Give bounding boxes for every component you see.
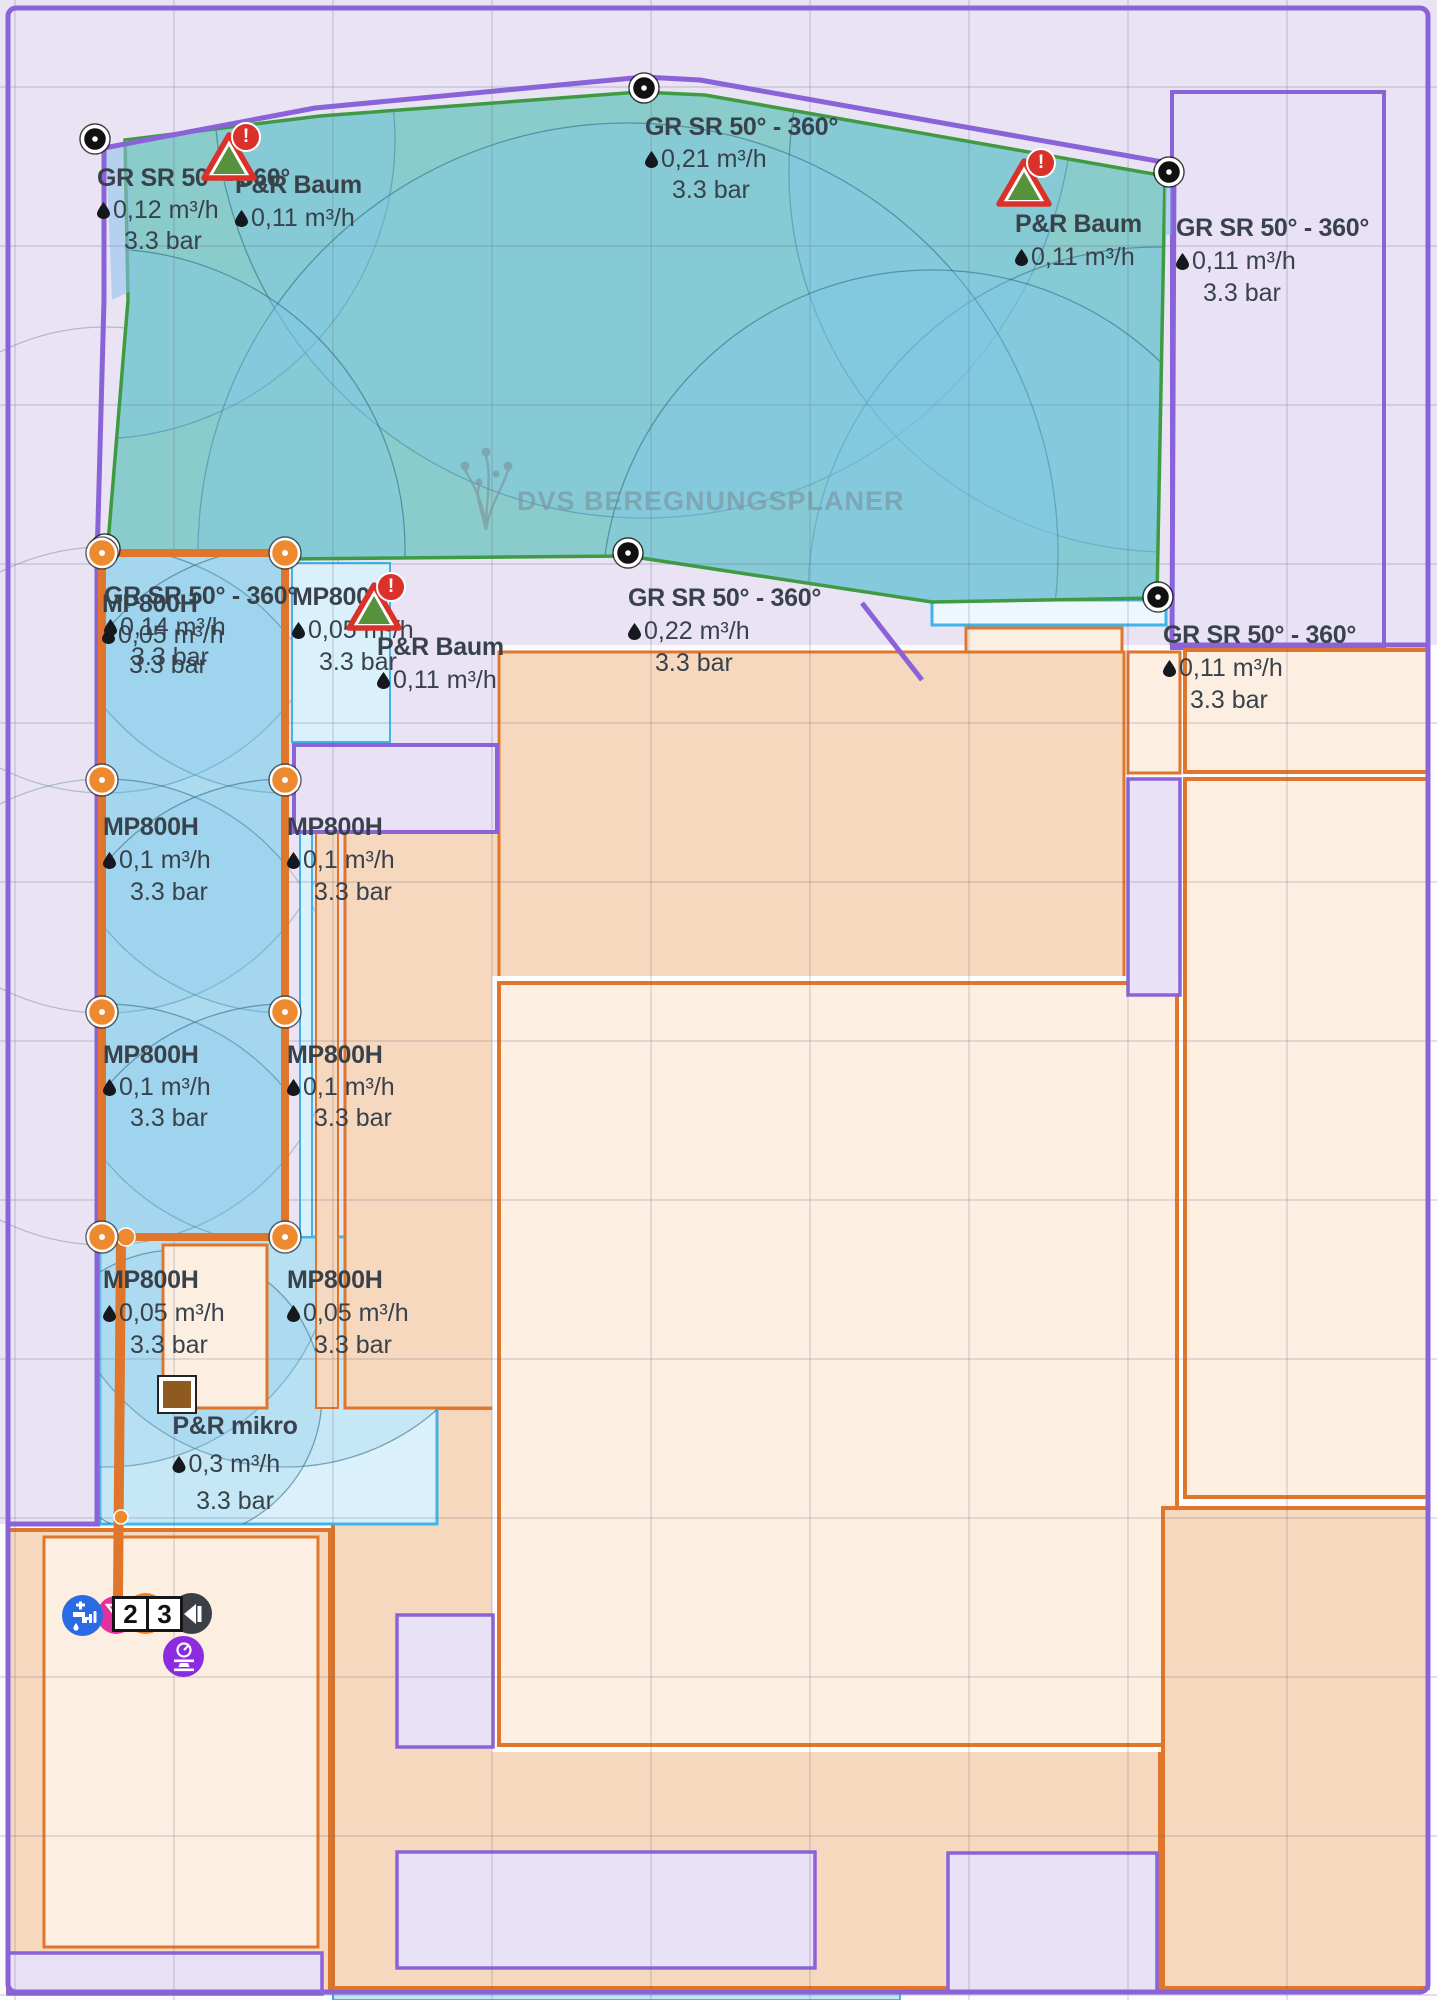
plot-narrow-right[interactable] (1128, 779, 1180, 995)
paved-right-bottom[interactable] (1163, 1508, 1428, 1988)
sprinkler-node[interactable] (629, 73, 659, 103)
zone-vertex-handle[interactable] (86, 764, 118, 796)
sprinkler-node[interactable] (80, 124, 110, 154)
zone-vertex-handle[interactable] (269, 537, 301, 569)
paved-strip-small[interactable] (966, 628, 1122, 652)
warning-marker-warn-strip-top[interactable]: ! (346, 572, 408, 636)
sprinkler-node[interactable] (613, 538, 643, 568)
warning-marker-warn-top-left[interactable]: ! (201, 122, 263, 186)
zone-vertex-handle[interactable] (86, 1221, 118, 1253)
pressure-regulator-icon[interactable] (163, 1636, 204, 1677)
supply-pipe[interactable] (118, 1237, 121, 1597)
sprinkler-node[interactable] (1154, 157, 1184, 187)
plot-bottom-left[interactable] (8, 1953, 322, 1994)
terrace-area[interactable] (499, 983, 1177, 1745)
micro-emitter-square[interactable] (159, 1377, 195, 1412)
paved-right-main[interactable] (1185, 779, 1428, 1497)
zone-vertex-handle[interactable] (269, 764, 301, 796)
plot-inset-1[interactable] (397, 1615, 493, 1747)
warning-badge: ! (231, 122, 261, 152)
garden-map (0, 0, 1437, 2000)
irrigation-planner-canvas[interactable]: DVS BEREGNUNGSPLANER GR SR 50° - 360°0,1… (0, 0, 1437, 2000)
paved-right-top[interactable] (1185, 650, 1428, 772)
drip-strip-narrow[interactable] (300, 832, 312, 1237)
plot-inset-3[interactable] (948, 1853, 1157, 1992)
controller-zone-3[interactable]: 3 (146, 1596, 183, 1632)
water-tap-icon[interactable] (62, 1595, 103, 1636)
zone-vertex-handle[interactable] (86, 537, 118, 569)
paved-area-middle[interactable] (499, 652, 1124, 983)
pipe-junction[interactable] (114, 1510, 128, 1524)
drip-line-strip[interactable] (932, 600, 1166, 625)
plot-inset-2[interactable] (397, 1852, 815, 1968)
sprinkler-node[interactable] (1143, 582, 1173, 612)
controller-zone-2[interactable]: 2 (112, 1596, 149, 1632)
paved-narrow-right[interactable] (1128, 652, 1180, 773)
plot-inset-left[interactable] (294, 745, 497, 832)
paved-strip-narrow[interactable] (316, 832, 338, 1408)
warning-badge: ! (376, 572, 406, 602)
warning-badge: ! (1026, 148, 1056, 178)
zone-vertex-handle[interactable] (269, 996, 301, 1028)
warning-marker-warn-top-right[interactable]: ! (996, 148, 1058, 212)
pipe-junction[interactable] (117, 1228, 135, 1246)
zone-vertex-handle[interactable] (269, 1221, 301, 1253)
zone-vertex-handle[interactable] (86, 996, 118, 1028)
paved-column[interactable] (345, 832, 499, 1408)
